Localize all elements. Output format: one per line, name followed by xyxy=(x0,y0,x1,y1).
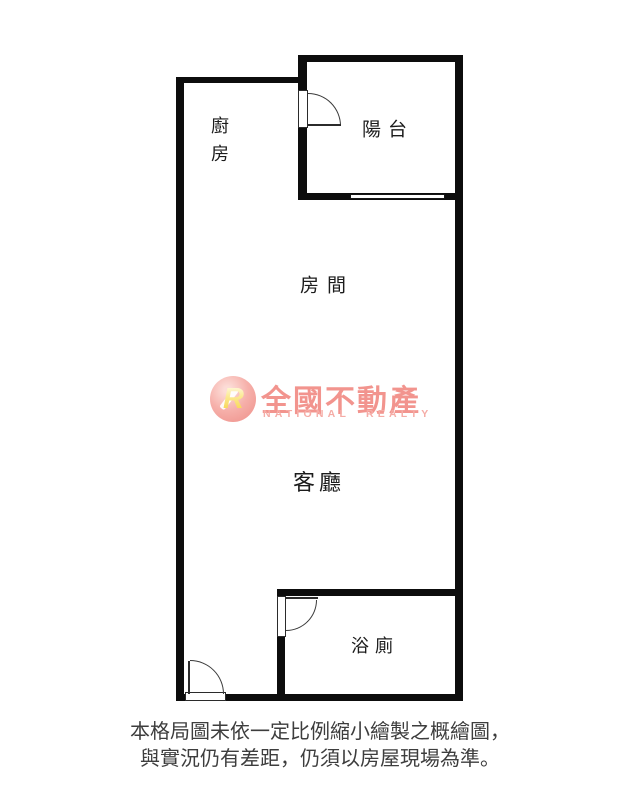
watermark-brand-name-en: NATIONAL REALTY xyxy=(263,408,432,420)
balcony-door-leaf xyxy=(308,124,341,126)
wall-balcony-top xyxy=(298,55,463,62)
wall-kitchen-top xyxy=(176,77,306,83)
room-label-living: 客廳 xyxy=(293,465,345,497)
room-label-balcony: 陽台 xyxy=(362,115,414,142)
logo-monogram: R xyxy=(223,383,244,415)
room-label-kitchen: 廚房 xyxy=(206,116,232,172)
wall-outer-left xyxy=(176,77,184,701)
wall-bathroom-left-lower xyxy=(277,637,285,701)
wall-balcony-left-lower xyxy=(298,128,307,200)
disclaimer-text: 本格局圖未依一定比例縮小繪製之概繪圖， 與實況仍有差距，仍須以房屋現場為準。 xyxy=(0,719,640,773)
watermark-logo: R 全國不動產 NATIONAL REALTY xyxy=(208,374,440,424)
logo-circle-icon: R xyxy=(210,376,256,422)
room-label-bedroom: 房間 xyxy=(300,271,354,298)
balcony-window xyxy=(350,194,445,199)
room-label-bathroom: 浴廁 xyxy=(351,632,399,658)
disclaimer-line-1: 本格局圖未依一定比例縮小繪製之概繪圖， xyxy=(0,719,640,746)
wall-balcony-left-upper xyxy=(298,55,307,91)
wall-outer-right xyxy=(455,55,463,701)
balcony-door-arc xyxy=(308,93,341,126)
wall-bathroom-top xyxy=(277,589,463,596)
balcony-door-opening xyxy=(298,90,308,128)
entrance-door-arc xyxy=(190,660,224,694)
disclaimer-line-2: 與實況仍有差距，仍須以房屋現場為準。 xyxy=(0,746,640,773)
bathroom-door-leaf xyxy=(286,597,318,599)
floorplan-image: 廚房 陽台 房間 客廳 浴廁 R 全國不動產 NATIONAL REALTY 本… xyxy=(0,0,640,800)
entrance-door-leaf xyxy=(188,661,190,694)
bathroom-door-arc xyxy=(286,600,317,631)
bathroom-door-opening xyxy=(277,596,286,637)
